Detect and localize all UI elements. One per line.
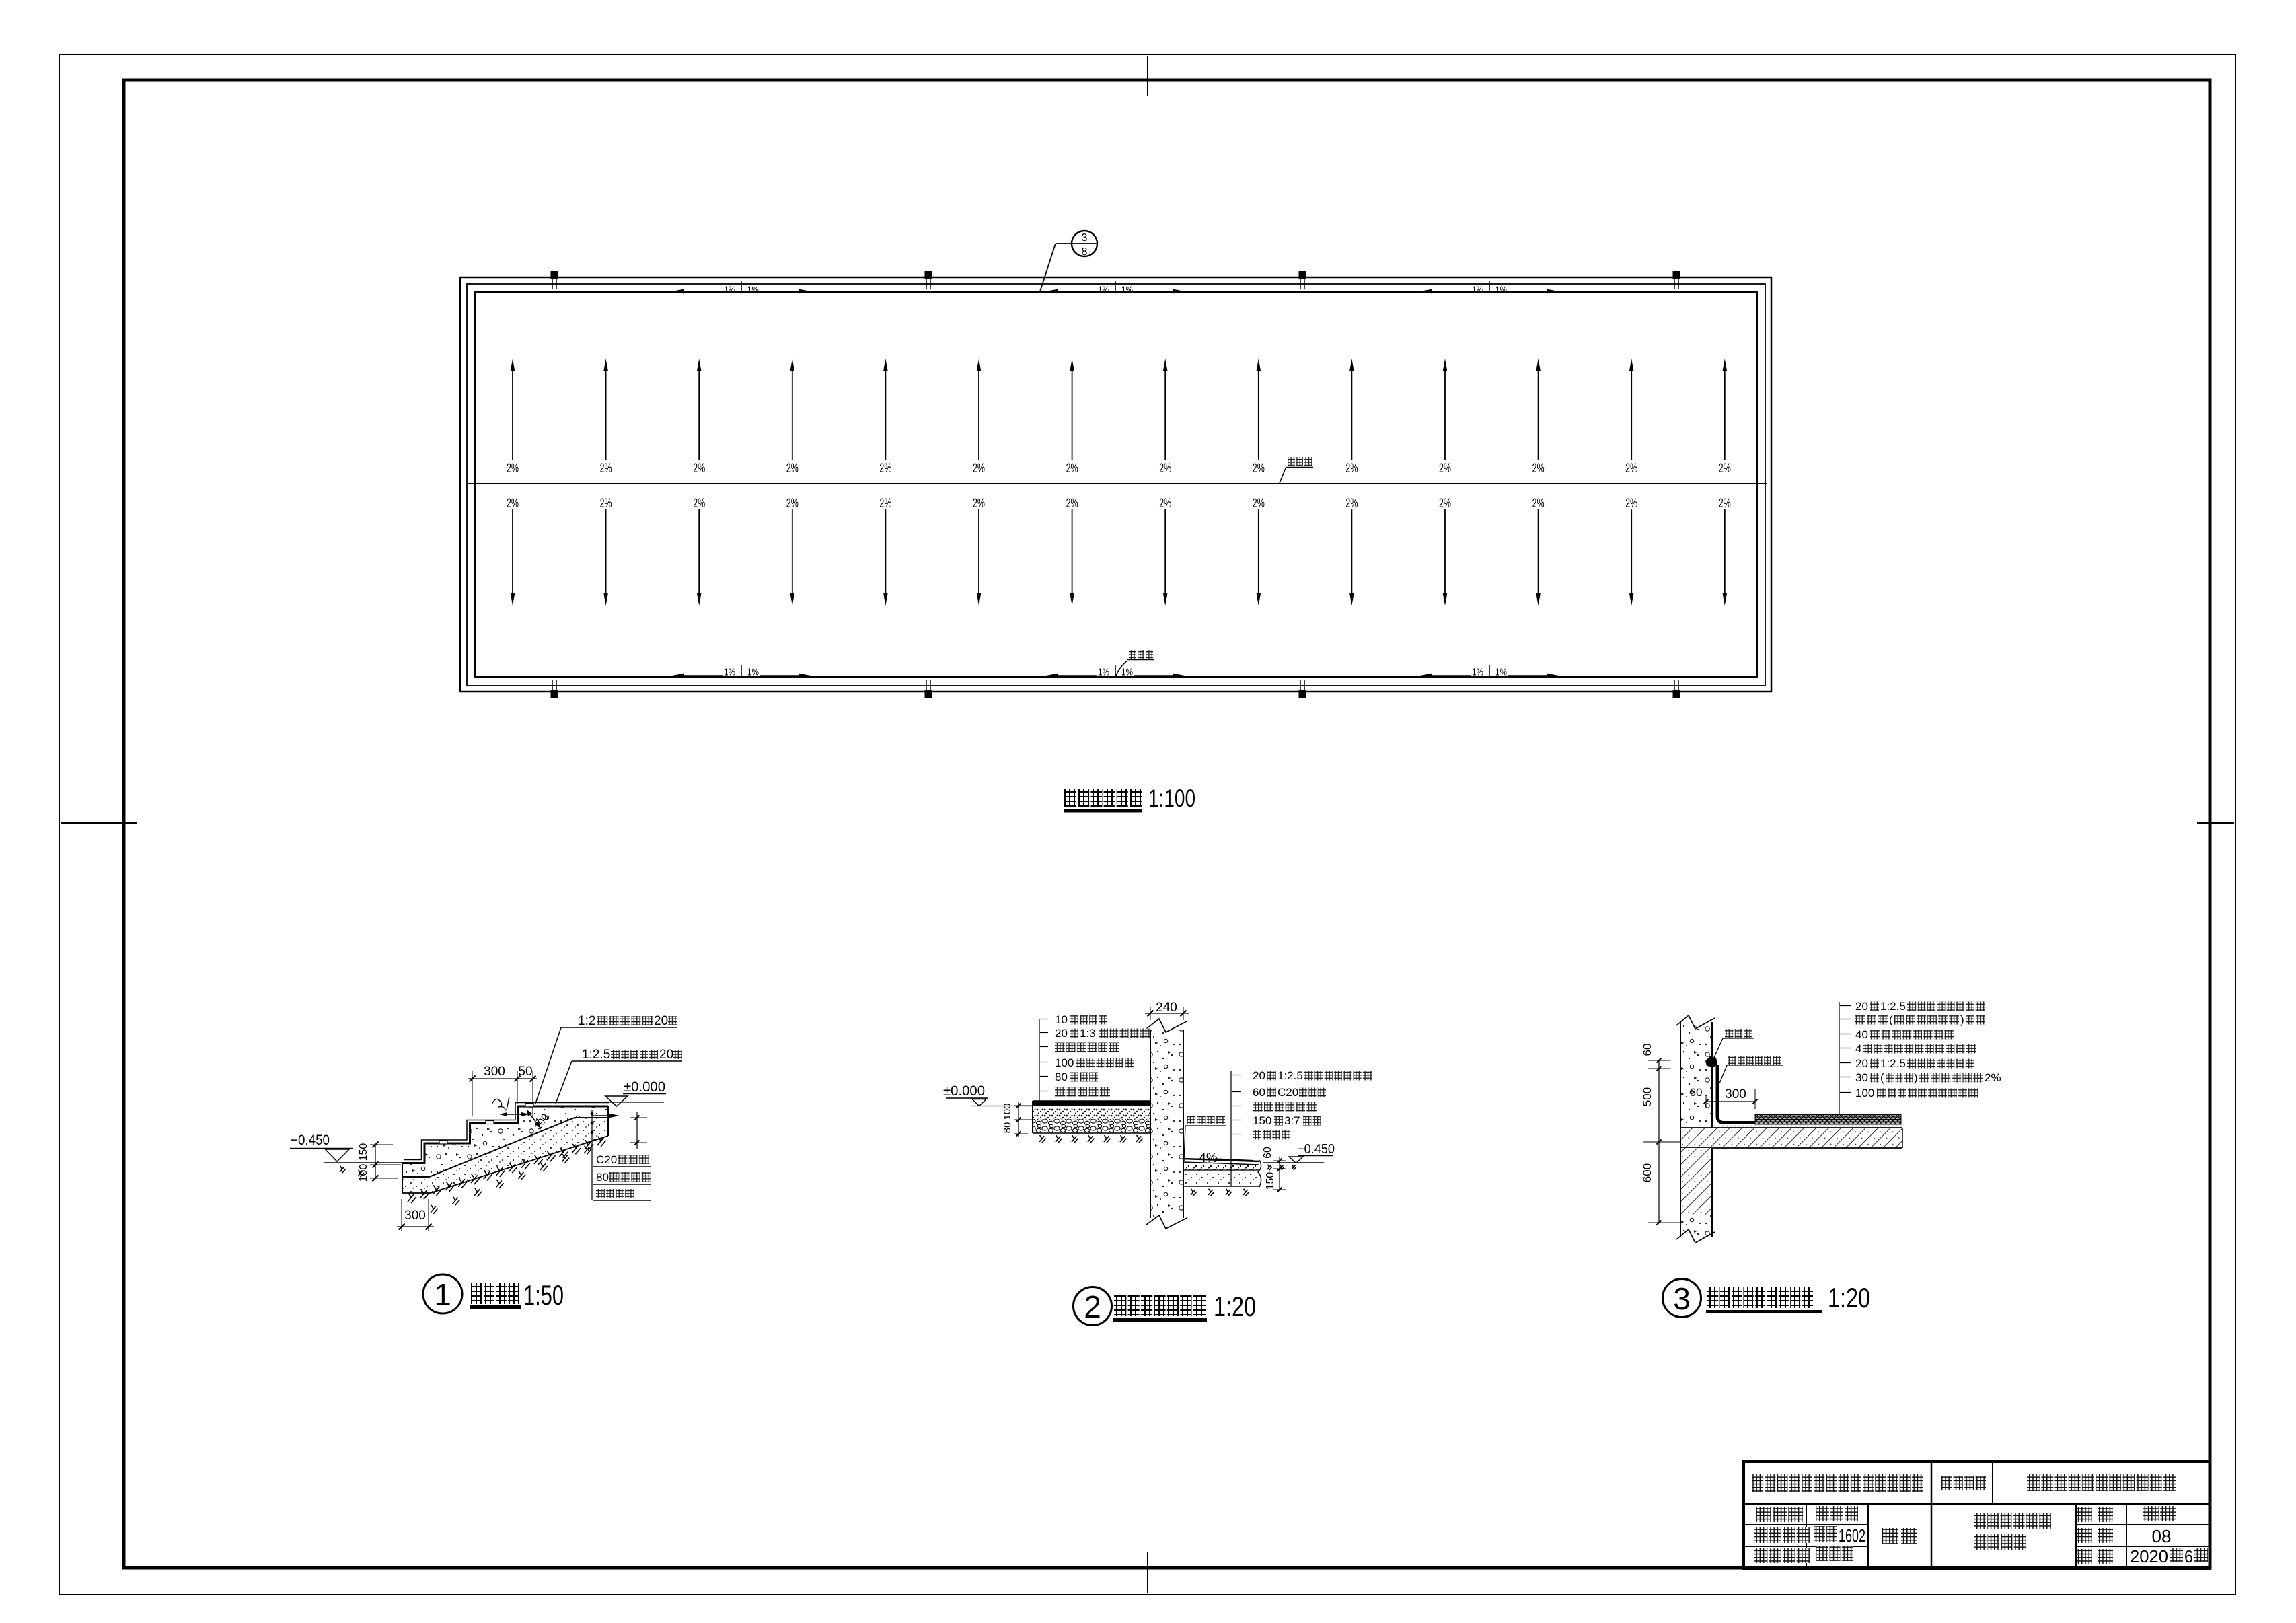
svg-text:08: 08 [2152,1526,2172,1546]
svg-text:2%: 2% [1345,497,1358,511]
svg-text:40: 40 [1855,1028,1868,1041]
svg-text:2%: 2% [1719,497,1731,511]
svg-text:2%: 2% [1439,497,1451,511]
svg-text:1%: 1% [1495,285,1507,296]
svg-text:2%: 2% [1345,462,1358,476]
svg-text:2%: 2% [1066,497,1078,511]
svg-text:1:20: 1:20 [1828,1282,1870,1313]
svg-text:(: ( [1880,1071,1884,1084]
svg-text:1:3: 1:3 [1080,1027,1096,1040]
svg-text:3:7: 3:7 [1284,1114,1300,1127]
svg-text:−0.450: −0.450 [1297,1142,1335,1157]
svg-text:1%: 1% [724,667,735,678]
svg-text:(: ( [1889,1013,1893,1026]
svg-text:100: 100 [358,1164,369,1182]
svg-text:2%: 2% [600,497,612,511]
svg-text:60: 60 [1262,1147,1273,1159]
svg-text:100: 100 [1855,1087,1874,1099]
svg-text:150: 150 [1253,1114,1271,1127]
svg-text:2%: 2% [693,462,705,476]
svg-text:2%: 2% [1253,497,1265,511]
svg-text:20: 20 [1855,1057,1868,1070]
svg-text:1%: 1% [1121,667,1133,678]
svg-text:20: 20 [1253,1069,1265,1082]
svg-text:2%: 2% [1253,462,1265,476]
svg-text:2%: 2% [786,497,799,511]
svg-text:20: 20 [659,1048,673,1062]
svg-text:2%: 2% [1159,497,1171,511]
svg-text:1:100: 1:100 [1148,785,1195,812]
svg-text:300: 300 [1725,1087,1746,1102]
svg-text:2%: 2% [600,462,612,476]
svg-text:1%: 1% [1495,667,1507,678]
svg-text:2%: 2% [1532,497,1545,511]
svg-text:300: 300 [484,1065,505,1079]
svg-text:1%: 1% [724,285,735,296]
svg-text:100: 100 [1002,1103,1013,1120]
svg-text:100: 100 [1055,1056,1074,1069]
svg-text:1%: 1% [747,285,759,296]
svg-text:2%: 2% [1985,1071,2001,1084]
svg-text:1%: 1% [1472,667,1483,678]
svg-text:20: 20 [1855,1000,1868,1013]
svg-text:2%: 2% [1439,462,1451,476]
svg-text:8: 8 [1082,246,1088,258]
svg-text:2%: 2% [507,497,519,511]
svg-text:1602: 1602 [1839,1525,1865,1546]
svg-text:1:50: 1:50 [523,1279,564,1311]
svg-text:3: 3 [1082,232,1088,244]
svg-text:C20: C20 [596,1153,617,1166]
svg-text:): ) [1914,1071,1918,1084]
svg-text:2%: 2% [1159,462,1171,476]
svg-text:1: 1 [434,1277,451,1312]
svg-text:60: 60 [1641,1044,1654,1056]
svg-text:2%: 2% [879,462,891,476]
svg-text:2%: 2% [507,462,519,476]
svg-text:2%: 2% [879,497,891,511]
svg-text:150: 150 [358,1143,369,1161]
svg-text:80: 80 [1055,1071,1068,1083]
svg-text:240: 240 [1156,1001,1177,1015]
svg-text:1%: 1% [1098,667,1109,678]
svg-text:1%: 1% [1121,285,1133,296]
svg-text:2%: 2% [1625,497,1637,511]
svg-text:±0.000: ±0.000 [943,1083,985,1099]
svg-text:50: 50 [518,1065,532,1079]
svg-text:1:2.5: 1:2.5 [1880,1057,1906,1070]
svg-text:30: 30 [1855,1071,1868,1084]
svg-text:2%: 2% [973,497,985,511]
svg-text:1:2.5: 1:2.5 [1277,1069,1303,1082]
svg-text:150: 150 [1265,1172,1276,1190]
svg-text:C20: C20 [1277,1086,1298,1099]
svg-text:500: 500 [1641,1087,1654,1106]
svg-text:2020: 2020 [2130,1546,2168,1566]
svg-text:): ) [1960,1013,1964,1026]
svg-text:±0.000: ±0.000 [624,1079,665,1095]
svg-text:4: 4 [1855,1042,1861,1055]
svg-text:1:2.5: 1:2.5 [582,1048,610,1062]
svg-text:300: 300 [404,1209,426,1223]
svg-text:1:20: 1:20 [1214,1291,1256,1322]
svg-text:2%: 2% [1625,462,1637,476]
svg-text:1%: 1% [747,667,759,678]
svg-text:1%: 1% [1098,285,1109,296]
svg-text:2%: 2% [786,462,799,476]
svg-text:2%: 2% [973,462,985,476]
svg-text:3: 3 [1673,1281,1691,1316]
svg-text:2%: 2% [1719,462,1731,476]
svg-text:2%: 2% [1532,462,1545,476]
svg-text:600: 600 [1641,1163,1654,1182]
svg-text:60: 60 [1690,1086,1703,1099]
svg-text:2%: 2% [693,497,705,511]
svg-text:−0.450: −0.450 [291,1132,330,1148]
svg-text:2: 2 [1084,1289,1101,1324]
svg-text:80: 80 [596,1171,609,1184]
svg-text:20: 20 [1055,1027,1068,1040]
svg-text:4%: 4% [1199,1151,1218,1165]
svg-text:80: 80 [1002,1122,1013,1134]
svg-text:1:2.5: 1:2.5 [1880,1000,1906,1013]
svg-text:2%: 2% [1066,462,1078,476]
svg-text:1%: 1% [1472,285,1483,296]
svg-text:6: 6 [2184,1546,2193,1566]
svg-text:20: 20 [654,1014,668,1028]
svg-text:60: 60 [1253,1086,1265,1099]
svg-text:1:2: 1:2 [578,1014,595,1028]
svg-text:10: 10 [1055,1013,1068,1026]
